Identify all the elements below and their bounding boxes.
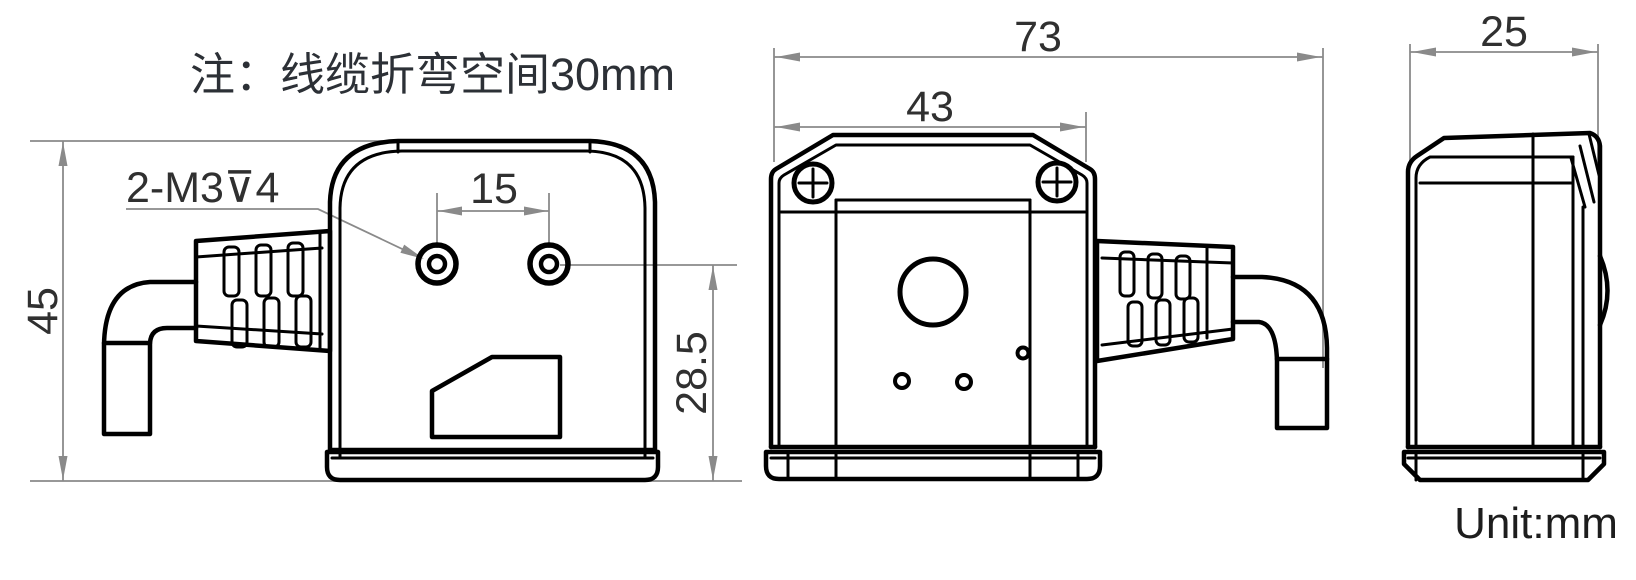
dim-label-45: 45 — [19, 287, 67, 335]
arrowhead-43-right — [1060, 123, 1084, 132]
cable-bend-note: 注：线缆折弯空间30mm — [190, 49, 675, 100]
corner-screw-right — [1038, 163, 1076, 201]
mounting-hole-left-inner — [429, 256, 445, 272]
side-view-body-inner-line — [1416, 157, 1573, 447]
arrowhead-73-left — [776, 53, 800, 62]
arrowhead-73-right — [1297, 53, 1321, 62]
side-view — [1404, 133, 1608, 480]
annotations: 注：线缆折弯空间30mm 2-M3⊽4 15 45 28.5 73 43 25 … — [19, 8, 1618, 548]
arrowhead-25-right — [1572, 48, 1596, 57]
side-view-base-band — [1404, 452, 1604, 480]
side-view-body-outline — [1408, 133, 1600, 447]
mounting-hole-right-outer — [530, 245, 568, 283]
front-view-strain-relief-ribs — [1120, 252, 1198, 346]
leader-line-thread-callout — [126, 209, 419, 257]
arrowhead-45-up — [59, 142, 68, 166]
side-view-chamfer-lines — [1571, 134, 1599, 207]
phillips-cross-icon — [1043, 168, 1071, 196]
side-view-base-ticks — [1416, 452, 1583, 480]
indicator-dot-3 — [1018, 348, 1029, 359]
unit-label: Unit:mm — [1454, 499, 1618, 548]
thread-callout-label: 2-M3⊽4 — [126, 164, 279, 212]
left-view-label-window — [432, 357, 560, 437]
front-view — [766, 135, 1327, 479]
dim-label-73: 73 — [1014, 13, 1062, 61]
left-view-cable-elbow — [104, 282, 196, 434]
lens-circle — [900, 259, 966, 325]
dimension-lines — [30, 44, 1598, 481]
front-view-base-ticks — [788, 452, 1078, 479]
technical-drawing-page: 注：线缆折弯空间30mm 2-M3⊽4 15 45 28.5 73 43 25 … — [0, 0, 1636, 580]
front-view-cable-elbow — [1233, 277, 1327, 428]
mounting-hole-left-outer — [418, 245, 456, 283]
arrowhead-25-left — [1412, 48, 1436, 57]
arrowhead-28-5-down — [709, 456, 718, 480]
mounting-hole-right-inner — [541, 256, 557, 272]
arrowhead-43-left — [776, 123, 800, 132]
indicator-dot-2 — [957, 375, 971, 389]
dim-label-43: 43 — [906, 83, 954, 131]
rib — [264, 298, 279, 347]
dimension-drawing: 注：线缆折弯空间30mm 2-M3⊽4 15 45 28.5 73 43 25 … — [0, 0, 1636, 580]
phillips-cross-icon — [799, 169, 827, 197]
front-view-base-band — [766, 452, 1100, 479]
rib — [296, 296, 311, 347]
indicator-dot-1 — [895, 374, 909, 388]
side-view-front-edge-lines — [1573, 157, 1583, 447]
dim-label-15: 15 — [470, 165, 518, 213]
rib — [232, 300, 247, 347]
arrowhead-15-left — [438, 207, 462, 216]
dim-label-28-5: 28.5 — [668, 331, 716, 415]
dim-label-25: 25 — [1480, 8, 1528, 56]
arrowhead-45-down — [59, 456, 68, 480]
corner-screw-left — [794, 164, 832, 202]
arrowhead-15-right — [524, 207, 548, 216]
arrowhead-28-5-up — [709, 266, 718, 290]
left-view-base-band — [327, 452, 658, 480]
